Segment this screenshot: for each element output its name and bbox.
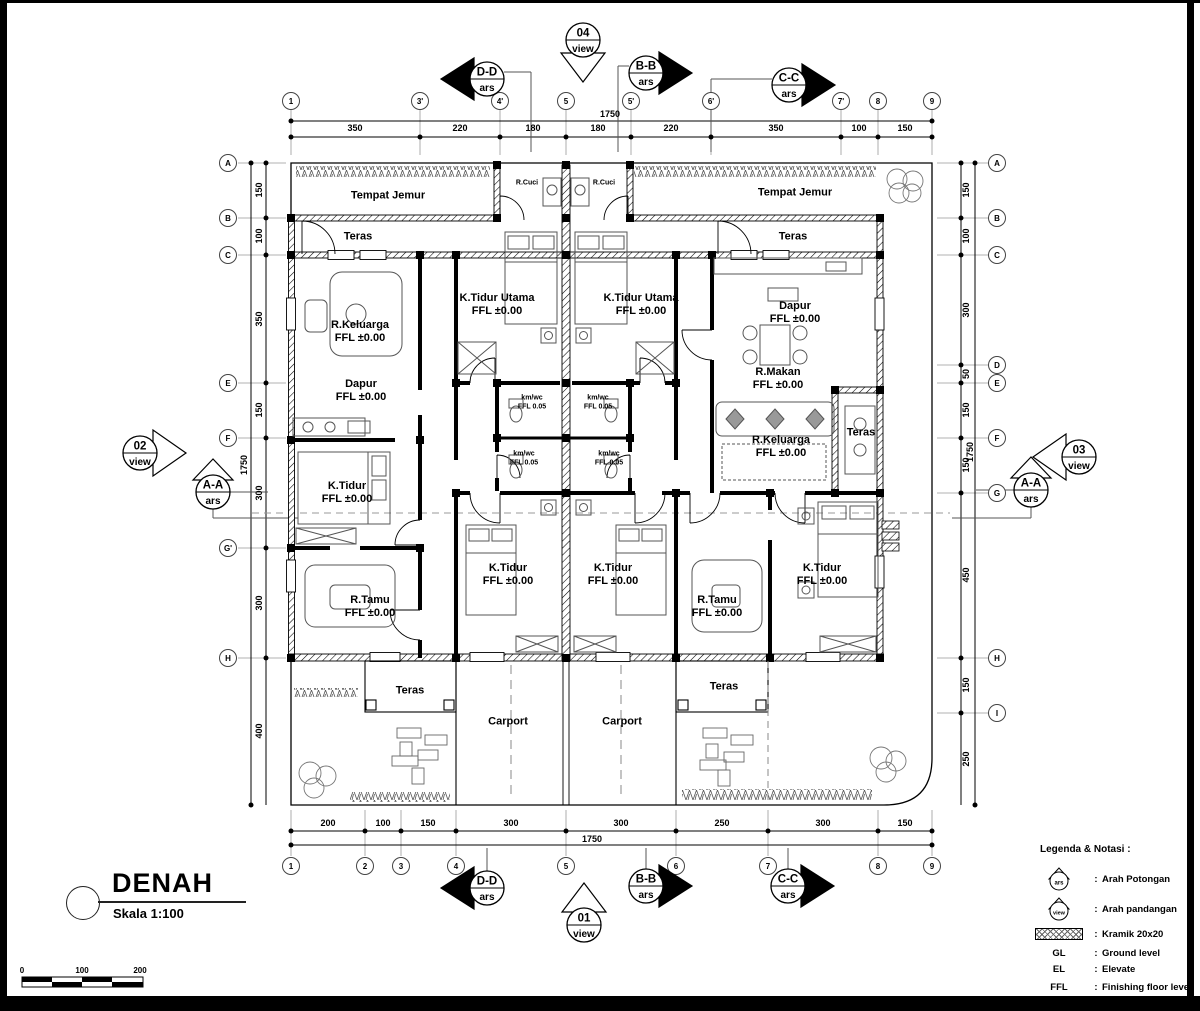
dimension-dot [289,843,294,848]
legend-row-arah-pandangan: view : Arah pandangan [1028,896,1177,922]
grid-bubble: I [988,704,1006,722]
room-label-k-tidur: K.TidurFFL ±0.00 [588,562,638,588]
drawing-scale: Skala 1:100 [113,906,184,921]
svg-text:ars: ars [1054,881,1064,887]
scale-tick-200: 200 [133,966,146,975]
dimension-label: 250 [961,751,971,766]
dimension-label: 350 [347,123,362,133]
grid-bubble: A [988,154,1006,172]
svg-text:ars: ars [479,892,494,903]
dimension-label: 1750 [965,442,975,462]
room-label-teras: Teras [779,230,808,243]
grid-bubble: 6' [702,92,720,110]
dimension-label: 150 [961,182,971,197]
title-block: DENAH Skala 1:100 [40,866,300,936]
room-label-tempat-jemur: Tempat Jemur [351,189,425,202]
legend-row-arah-potongan: ars : Arah Potongan [1028,866,1170,892]
room-label-carport: Carport [602,715,642,728]
dimension-dot [930,119,935,124]
svg-text:ars: ars [638,77,653,88]
svg-text:B-B: B-B [636,61,656,73]
grid-bubble: 9 [923,92,941,110]
legend-colon: : [1090,948,1102,959]
room-label-r-tamu: R.TamuFFL ±0.00 [692,594,742,620]
room-label-k-tidur: K.TidurFFL ±0.00 [797,562,847,588]
dimension-label: 350 [254,311,264,326]
room-label-k-tidur: K.TidurFFL ±0.00 [322,480,372,506]
grid-bubble: C [219,246,237,264]
room-label-r-keluarga: R.KeluargaFFL ±0.00 [752,434,810,460]
dimension-dot [959,363,964,368]
legend-label: Arah Potongan [1102,874,1170,885]
legend-abbr: FFL [1028,982,1090,993]
svg-text:A-A: A-A [1021,478,1041,490]
svg-text:ars: ars [205,496,220,507]
svg-text:C-C: C-C [779,73,799,85]
frame-bottom [0,996,1200,1011]
dimension-label: 300 [254,595,264,610]
room-label-km-wc: km/wcFFL 0.05 [595,450,623,468]
plot-boundary [291,163,932,805]
dimension-dot [876,135,881,140]
dimension-dot [959,656,964,661]
room-label-k-tidur-utama: K.Tidur UtamaFFL ±0.00 [460,292,535,318]
dimension-dot [564,829,569,834]
dimension-label: 50 [961,369,971,379]
svg-text:view: view [1053,911,1066,917]
kramik-hatch-icon [1028,928,1090,940]
dimension-label: 100 [961,228,971,243]
svg-text:ars: ars [781,89,796,100]
grid-bubble: 2 [356,857,374,875]
legend-row-kramik: : Kramik 20x20 [1028,928,1163,940]
legend-colon: : [1090,982,1102,993]
legend-label: Finishing floor level [1102,982,1192,993]
grid-bubble: B [219,209,237,227]
room-label-dapur: DapurFFL ±0.00 [336,378,386,404]
room-label-k-tidur: K.TidurFFL ±0.00 [483,562,533,588]
dimension-label: 150 [961,677,971,692]
svg-text:C-C: C-C [778,874,798,886]
dimension-label: 100 [375,818,390,828]
legend-label: Ground level [1102,948,1160,959]
section-leaders [213,66,1031,871]
legend: Legenda & Notasi : ars : Arah Potongan v… [1028,840,1183,1000]
svg-text:D-D: D-D [477,67,497,79]
frame-right [1187,0,1194,1011]
svg-text:B-B: B-B [636,874,656,886]
dimension-dot [264,216,269,221]
dimension-dot [289,135,294,140]
svg-text:ars: ars [479,83,494,94]
legend-row-gl: GL : Ground level [1028,948,1160,959]
view-marker-icon: view [1028,896,1090,922]
room-label-km-wc: km/wcFFL 0.05 [518,394,546,412]
room-label-tempat-jemur: Tempat Jemur [758,186,832,199]
trees [299,169,923,798]
dimension-dot [930,829,935,834]
grid-bubble: H [988,649,1006,667]
dimension-dot [959,161,964,166]
dimension-label: 150 [254,182,264,197]
doors [302,196,805,640]
room-label-teras: Teras [847,426,876,439]
legend-abbr: GL [1028,948,1090,959]
dimension-label: 450 [961,567,971,582]
legend-label: Elevate [1102,964,1135,975]
dimension-label: 150 [254,402,264,417]
svg-text:02: 02 [134,441,147,453]
dimension-label: 250 [714,818,729,828]
dimension-dot [363,829,368,834]
grid-bubble: H [219,649,237,667]
dimension-label: 150 [420,818,435,828]
room-label-k-tidur-utama: K.Tidur UtamaFFL ±0.00 [604,292,679,318]
grid-bubble: 3' [411,92,429,110]
legend-row-el: EL : Elevate [1028,964,1135,975]
room-label-r-keluarga: R.KeluargaFFL ±0.00 [331,319,389,345]
title-circle [66,886,100,920]
room-label-dapur: DapurFFL ±0.00 [770,300,820,326]
dimension-dot [249,161,254,166]
dimension-dot [399,829,404,834]
dimension-label: 300 [961,302,971,317]
scale-tick-0: 0 [20,966,24,975]
dimension-dot [959,711,964,716]
dimension-label: 150 [961,402,971,417]
svg-text:04: 04 [577,28,590,40]
legend-colon: : [1090,904,1102,915]
legend-label: Arah pandangan [1102,904,1177,915]
legend-colon: : [1090,964,1102,975]
dimension-dot [264,161,269,166]
dimension-dot [930,843,935,848]
dimension-dot [973,161,978,166]
dimension-dot [930,135,935,140]
room-label-km-wc: km/wcFFL 0.05 [510,450,538,468]
scale-bar-graphic [16,976,176,996]
grid-bubble: D [988,356,1006,374]
dimension-dot [249,803,254,808]
dimension-dot [289,119,294,124]
grid-bubble: 8 [869,92,887,110]
legend-heading: Legenda & Notasi : [1040,844,1131,855]
drawing-title: DENAH [112,868,213,899]
dimension-label: 150 [897,818,912,828]
svg-text:view: view [129,457,151,468]
dimension-label: 150 [897,123,912,133]
dimension-dot [959,253,964,258]
svg-text:D-D: D-D [477,876,497,888]
dimension-dot [264,381,269,386]
dimension-dot [709,135,714,140]
title-underline [98,901,246,903]
blueprint-page: Tempat JemurTempat JemurR.CuciR.CuciTera… [0,0,1200,1011]
dimension-dot [564,135,569,140]
dimension-dot [959,216,964,221]
dimension-dot [264,656,269,661]
legend-label: Kramik 20x20 [1102,929,1163,940]
room-label-r-tamu: R.TamuFFL ±0.00 [345,594,395,620]
svg-text:01: 01 [578,913,591,925]
legend-row-ffl: FFL : Finishing floor level [1028,982,1192,993]
room-label-teras: Teras [396,684,425,697]
grid-bubble: 1 [282,92,300,110]
dimension-dot [264,253,269,258]
dimension-label: 300 [815,818,830,828]
legend-colon: : [1090,929,1102,940]
garden-vegetation [294,166,876,802]
legend-colon: : [1090,874,1102,885]
teras-carport-lines [365,661,768,805]
dimension-dot [289,829,294,834]
grid-bubble: 3 [392,857,410,875]
room-label-r-cuci: R.Cuci [516,180,538,189]
room-label-carport: Carport [488,715,528,728]
room-label-teras: Teras [344,230,373,243]
dimension-dot [959,381,964,386]
room-label-r-cuci: R.Cuci [593,180,615,189]
dimension-dot [959,436,964,441]
dimension-dot [418,135,423,140]
room-label-km-wc: km/wcFFL 0.05 [584,394,612,412]
dimension-dot [629,135,634,140]
dimension-label: 300 [503,818,518,828]
grid-bubble: E [988,374,1006,392]
dimension-label: 100 [851,123,866,133]
grid-bubble: E [219,374,237,392]
legend-abbr: EL [1028,964,1090,975]
dimension-dot [876,829,881,834]
dimension-dot [959,491,964,496]
svg-text:ars: ars [638,890,653,901]
ars-marker-icon: ars [1028,866,1090,892]
room-label-teras: Teras [710,680,739,693]
grid-bubble: 9 [923,857,941,875]
scale-bar: 0 100 200 [16,966,176,996]
svg-text:A-A: A-A [203,480,223,492]
dimension-label: 300 [613,818,628,828]
stepping-stones [392,728,753,786]
svg-text:ars: ars [780,890,795,901]
grid-bubble: 8 [869,857,887,875]
dimension-label: 100 [254,228,264,243]
dimension-label: 200 [320,818,335,828]
grid-bubble: B [988,209,1006,227]
dimension-label: 400 [254,723,264,738]
dimension-dot [498,135,503,140]
grid-bubble: C [988,246,1006,264]
dimension-dot [973,803,978,808]
room-label-r-makan: R.MakanFFL ±0.00 [753,366,803,392]
svg-text:ars: ars [1023,494,1038,505]
scale-tick-100: 100 [75,966,88,975]
frame-left [0,0,7,1011]
exterior-steps [882,521,899,551]
furniture [293,178,878,652]
grid-bubble: A [219,154,237,172]
